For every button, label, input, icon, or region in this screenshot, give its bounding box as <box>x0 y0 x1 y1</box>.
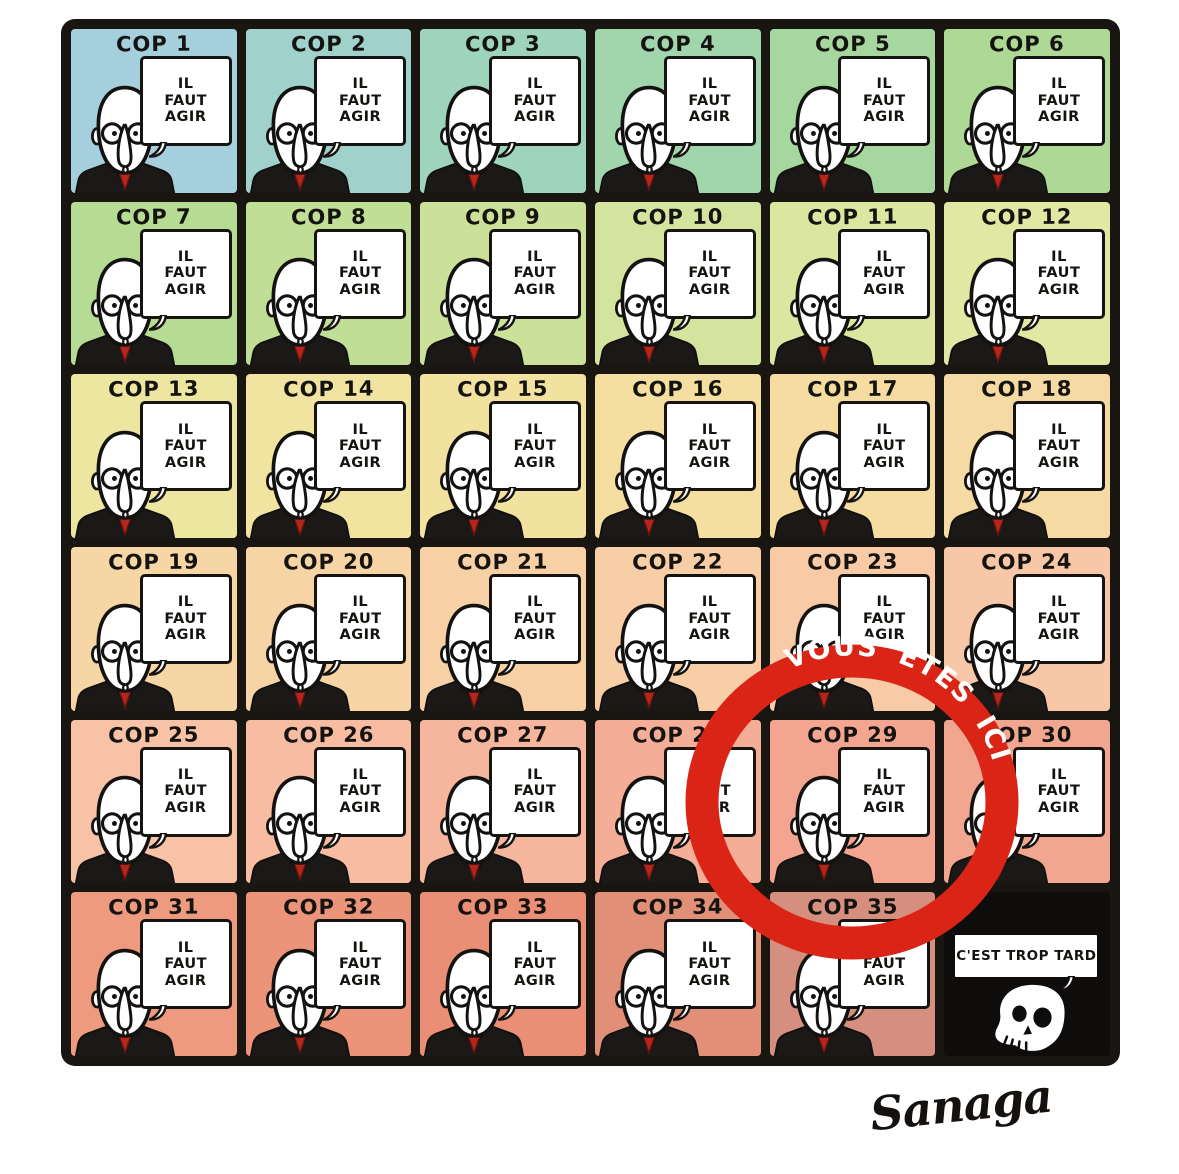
cop-panel-34: COP 34 IL FAUT AGIR <box>595 892 761 1056</box>
cop-panel-32: COP 32 IL FAUT AGIR <box>246 892 412 1056</box>
speech-line: IL <box>178 594 194 611</box>
cop-label: COP 28 <box>595 722 761 748</box>
cop-panel-24: COP 24 IL FAUT AGIR <box>944 547 1110 711</box>
comic-page: COP 1 IL FAUT AGIR COP 2 <box>0 0 1179 1174</box>
speech-line: AGIR <box>514 627 556 644</box>
cop-label: COP 13 <box>71 376 237 402</box>
speech-bubble: IL FAUT AGIR <box>314 229 406 319</box>
speech-line: AGIR <box>689 109 731 126</box>
speech-bubble: IL FAUT AGIR <box>664 229 756 319</box>
speech-line: AGIR <box>165 800 207 817</box>
speech-line: AGIR <box>339 282 381 299</box>
cop-label: COP 21 <box>420 549 586 575</box>
bubble-tail <box>673 315 691 331</box>
bubble-tail <box>847 833 865 849</box>
cop-panel-1: COP 1 IL FAUT AGIR <box>71 29 237 193</box>
bubble-tail <box>847 142 865 158</box>
bubble-tail <box>1022 487 1040 503</box>
speech-line: FAUT <box>339 956 382 973</box>
speech-bubble: IL FAUT AGIR <box>838 747 930 837</box>
too-late-text: C'EST TROP TARD <box>956 948 1096 964</box>
speech-line: IL <box>178 422 194 439</box>
cop-panel-15: COP 15 IL FAUT AGIR <box>420 374 586 538</box>
speech-bubble: IL FAUT AGIR <box>1013 747 1105 837</box>
speech-bubble: IL FAUT AGIR <box>140 574 232 664</box>
speech-line: FAUT <box>863 93 906 110</box>
speech-line: AGIR <box>514 973 556 990</box>
cop-label: COP 18 <box>944 376 1110 402</box>
speech-line: AGIR <box>339 455 381 472</box>
cop-label: COP 4 <box>595 31 761 57</box>
speech-bubble: IL FAUT AGIR <box>1013 229 1105 319</box>
speech-bubble: IL FAUT AGIR <box>140 229 232 319</box>
speech-bubble: IL FAUT AGIR <box>314 574 406 664</box>
speech-line: IL <box>353 767 369 784</box>
bubble-tail <box>323 1005 341 1021</box>
speech-line: IL <box>527 940 543 957</box>
speech-bubble: IL FAUT AGIR <box>664 919 756 1009</box>
cop-label: COP 17 <box>770 376 936 402</box>
bubble-tail <box>847 1005 865 1021</box>
speech-line: AGIR <box>339 800 381 817</box>
bubble-tail <box>673 142 691 158</box>
speech-line: FAUT <box>688 438 731 455</box>
cop-label: COP 10 <box>595 204 761 230</box>
speech-line: AGIR <box>863 800 905 817</box>
cop-label: COP 8 <box>246 204 412 230</box>
cop-panel-8: COP 8 IL FAUT AGIR <box>246 202 412 366</box>
cop-panel-too-late: C'EST TROP TARD <box>944 892 1110 1056</box>
artist-signature: Sanaga <box>829 1065 1093 1146</box>
speech-bubble: IL FAUT AGIR <box>664 574 756 664</box>
speech-line: FAUT <box>514 956 557 973</box>
cop-label: COP 24 <box>944 549 1110 575</box>
speech-line: FAUT <box>688 956 731 973</box>
bubble-tail <box>323 315 341 331</box>
cop-panel-6: COP 6 IL FAUT AGIR <box>944 29 1110 193</box>
cop-panels-grid: COP 1 IL FAUT AGIR COP 2 <box>61 19 1120 1066</box>
speech-line: IL <box>178 76 194 93</box>
cop-panel-30: COP 30 IL FAUT AGIR <box>944 720 1110 884</box>
speech-line: AGIR <box>165 282 207 299</box>
cop-label: COP 23 <box>770 549 936 575</box>
cop-panel-26: COP 26 IL FAUT AGIR <box>246 720 412 884</box>
speech-bubble: IL FAUT AGIR <box>489 747 581 837</box>
cop-panel-20: COP 20 IL FAUT AGIR <box>246 547 412 711</box>
speech-line: IL <box>1051 422 1067 439</box>
speech-bubble: IL FAUT AGIR <box>314 747 406 837</box>
speech-line: FAUT <box>339 783 382 800</box>
bubble-tail <box>323 660 341 676</box>
speech-line: FAUT <box>688 265 731 282</box>
bubble-tail <box>149 142 167 158</box>
bubble-tail <box>1022 833 1040 849</box>
bubble-tail <box>498 142 516 158</box>
speech-line: AGIR <box>165 109 207 126</box>
cop-label: COP 26 <box>246 722 412 748</box>
speech-line: AGIR <box>165 455 207 472</box>
speech-bubble: IL FAUT AGIR <box>489 574 581 664</box>
speech-line: AGIR <box>165 973 207 990</box>
bubble-tail <box>1022 315 1040 331</box>
bubble-tail <box>847 315 865 331</box>
speech-bubble: IL FAUT AGIR <box>664 747 756 837</box>
speech-bubble: IL FAUT AGIR <box>664 401 756 491</box>
speech-line: AGIR <box>863 973 905 990</box>
cop-panel-9: COP 9 IL FAUT AGIR <box>420 202 586 366</box>
speech-line: AGIR <box>339 973 381 990</box>
cop-label: COP 12 <box>944 204 1110 230</box>
bubble-tail <box>1022 660 1040 676</box>
cop-panel-7: COP 7 IL FAUT AGIR <box>71 202 237 366</box>
speech-line: AGIR <box>339 109 381 126</box>
speech-line: FAUT <box>164 956 207 973</box>
cop-panel-23: COP 23 IL FAUT AGIR <box>770 547 936 711</box>
speech-line: IL <box>353 249 369 266</box>
speech-line: IL <box>877 76 893 93</box>
speech-line: FAUT <box>1038 93 1081 110</box>
speech-line: AGIR <box>689 973 731 990</box>
bubble-tail <box>673 1005 691 1021</box>
cop-label: COP 19 <box>71 549 237 575</box>
speech-line: AGIR <box>514 109 556 126</box>
cop-panel-2: COP 2 IL FAUT AGIR <box>246 29 412 193</box>
cop-label: COP 27 <box>420 722 586 748</box>
cop-label: COP 1 <box>71 31 237 57</box>
speech-line: AGIR <box>1038 109 1080 126</box>
cop-label: COP 25 <box>71 722 237 748</box>
speech-line: IL <box>702 767 718 784</box>
speech-line: FAUT <box>514 438 557 455</box>
bubble-tail <box>498 1005 516 1021</box>
speech-line: AGIR <box>689 627 731 644</box>
bubble-tail <box>149 487 167 503</box>
cop-panel-13: COP 13 IL FAUT AGIR <box>71 374 237 538</box>
bubble-tail <box>847 660 865 676</box>
speech-line: AGIR <box>863 109 905 126</box>
speech-bubble: IL FAUT AGIR <box>838 401 930 491</box>
speech-line: FAUT <box>1038 438 1081 455</box>
speech-line: FAUT <box>164 438 207 455</box>
speech-line: FAUT <box>688 611 731 628</box>
speech-line: IL <box>702 594 718 611</box>
cop-panel-10: COP 10 IL FAUT AGIR <box>595 202 761 366</box>
bubble-tail <box>149 660 167 676</box>
cop-panel-3: COP 3 IL FAUT AGIR <box>420 29 586 193</box>
bubble-tail <box>149 315 167 331</box>
speech-line: FAUT <box>339 265 382 282</box>
speech-line: IL <box>877 940 893 957</box>
speech-bubble: IL FAUT AGIR <box>838 919 930 1009</box>
speech-line: IL <box>527 422 543 439</box>
speech-line: IL <box>178 940 194 957</box>
speech-line: IL <box>702 940 718 957</box>
speech-line: FAUT <box>863 783 906 800</box>
speech-bubble: IL FAUT AGIR <box>838 56 930 146</box>
speech-bubble: IL FAUT AGIR <box>489 919 581 1009</box>
speech-line: FAUT <box>863 956 906 973</box>
speech-line: FAUT <box>164 93 207 110</box>
speech-line: IL <box>877 422 893 439</box>
bubble-tail <box>673 833 691 849</box>
speech-line: FAUT <box>1038 783 1081 800</box>
cop-label: COP 16 <box>595 376 761 402</box>
speech-bubble: IL FAUT AGIR <box>140 401 232 491</box>
speech-line: IL <box>877 767 893 784</box>
speech-line: IL <box>353 422 369 439</box>
speech-line: AGIR <box>689 282 731 299</box>
bubble-tail <box>149 1005 167 1021</box>
cop-label: COP 7 <box>71 204 237 230</box>
speech-bubble: IL FAUT AGIR <box>664 56 756 146</box>
cop-label: COP 9 <box>420 204 586 230</box>
cop-panel-28: COP 28 IL FAUT AGIR <box>595 720 761 884</box>
cop-label: COP 20 <box>246 549 412 575</box>
speech-line: AGIR <box>689 800 731 817</box>
speech-line: FAUT <box>863 265 906 282</box>
speech-line: AGIR <box>863 282 905 299</box>
cop-panel-14: COP 14 IL FAUT AGIR <box>246 374 412 538</box>
speech-line: IL <box>877 249 893 266</box>
speech-line: AGIR <box>863 627 905 644</box>
bubble-tail <box>498 660 516 676</box>
speech-line: FAUT <box>164 611 207 628</box>
bubble-tail <box>1057 976 1075 992</box>
speech-line: FAUT <box>514 93 557 110</box>
speech-line: IL <box>1051 594 1067 611</box>
bubble-tail <box>498 833 516 849</box>
cop-label: COP 29 <box>770 722 936 748</box>
speech-bubble: IL FAUT AGIR <box>1013 401 1105 491</box>
speech-line: IL <box>178 249 194 266</box>
speech-line: FAUT <box>339 611 382 628</box>
speech-line: IL <box>527 594 543 611</box>
speech-line: IL <box>702 76 718 93</box>
cop-panel-35: COP 35 IL FAUT AGIR <box>770 892 936 1056</box>
cop-panel-25: COP 25 IL FAUT AGIR <box>71 720 237 884</box>
speech-line: FAUT <box>863 438 906 455</box>
speech-line: IL <box>877 594 893 611</box>
speech-bubble: IL FAUT AGIR <box>838 229 930 319</box>
bubble-tail <box>847 487 865 503</box>
speech-line: IL <box>702 422 718 439</box>
speech-line: AGIR <box>165 627 207 644</box>
speech-line: IL <box>353 76 369 93</box>
speech-line: FAUT <box>164 265 207 282</box>
speech-line: FAUT <box>514 783 557 800</box>
skull-icon <box>984 982 1076 1054</box>
speech-bubble: IL FAUT AGIR <box>489 56 581 146</box>
cop-panel-17: COP 17 IL FAUT AGIR <box>770 374 936 538</box>
cop-panel-33: COP 33 IL FAUT AGIR <box>420 892 586 1056</box>
cop-panel-12: COP 12 IL FAUT AGIR <box>944 202 1110 366</box>
speech-line: AGIR <box>863 455 905 472</box>
speech-line: FAUT <box>339 438 382 455</box>
speech-bubble: IL FAUT AGIR <box>314 56 406 146</box>
speech-line: AGIR <box>689 455 731 472</box>
speech-line: FAUT <box>1038 611 1081 628</box>
speech-line: AGIR <box>1038 282 1080 299</box>
bubble-tail <box>673 487 691 503</box>
cop-label: COP 30 <box>944 722 1110 748</box>
bubble-tail <box>1022 142 1040 158</box>
speech-bubble: IL FAUT AGIR <box>314 919 406 1009</box>
speech-line: AGIR <box>514 282 556 299</box>
cop-panel-29: COP 29 IL FAUT AGIR <box>770 720 936 884</box>
cop-panel-11: COP 11 IL FAUT AGIR <box>770 202 936 366</box>
speech-bubble: IL FAUT AGIR <box>1013 56 1105 146</box>
speech-line: AGIR <box>1038 455 1080 472</box>
speech-line: IL <box>1051 767 1067 784</box>
cop-panel-16: COP 16 IL FAUT AGIR <box>595 374 761 538</box>
cop-label: COP 3 <box>420 31 586 57</box>
speech-line: FAUT <box>688 783 731 800</box>
speech-line: AGIR <box>339 627 381 644</box>
cop-label: COP 5 <box>770 31 936 57</box>
bubble-tail <box>149 833 167 849</box>
speech-line: FAUT <box>1038 265 1081 282</box>
cop-label: COP 15 <box>420 376 586 402</box>
speech-line: AGIR <box>514 800 556 817</box>
speech-line: IL <box>1051 249 1067 266</box>
cop-panel-18: COP 18 IL FAUT AGIR <box>944 374 1110 538</box>
speech-bubble: IL FAUT AGIR <box>140 747 232 837</box>
speech-bubble: IL FAUT AGIR <box>1013 574 1105 664</box>
speech-line: IL <box>527 767 543 784</box>
cop-panel-31: COP 31 IL FAUT AGIR <box>71 892 237 1056</box>
speech-line: IL <box>527 76 543 93</box>
speech-line: FAUT <box>339 93 382 110</box>
bubble-tail <box>323 142 341 158</box>
speech-bubble: IL FAUT AGIR <box>140 919 232 1009</box>
too-late-speech-bubble: C'EST TROP TARD <box>952 932 1100 980</box>
speech-line: IL <box>1051 76 1067 93</box>
speech-line: AGIR <box>1038 800 1080 817</box>
speech-line: AGIR <box>1038 627 1080 644</box>
cop-panel-5: COP 5 IL FAUT AGIR <box>770 29 936 193</box>
cop-label: COP 32 <box>246 894 412 920</box>
bubble-tail <box>323 833 341 849</box>
cop-panel-27: COP 27 IL FAUT AGIR <box>420 720 586 884</box>
cop-label: COP 22 <box>595 549 761 575</box>
cop-label: COP 31 <box>71 894 237 920</box>
cop-panel-22: COP 22 IL FAUT AGIR <box>595 547 761 711</box>
cop-label: COP 2 <box>246 31 412 57</box>
speech-bubble: IL FAUT AGIR <box>140 56 232 146</box>
speech-line: FAUT <box>688 93 731 110</box>
bubble-tail <box>673 660 691 676</box>
bubble-tail <box>323 487 341 503</box>
cop-label: COP 34 <box>595 894 761 920</box>
speech-bubble: IL FAUT AGIR <box>838 574 930 664</box>
cop-label: COP 14 <box>246 376 412 402</box>
speech-line: FAUT <box>863 611 906 628</box>
speech-line: IL <box>702 249 718 266</box>
speech-line: FAUT <box>514 611 557 628</box>
cop-panel-21: COP 21 IL FAUT AGIR <box>420 547 586 711</box>
cop-label: COP 6 <box>944 31 1110 57</box>
bubble-tail <box>498 315 516 331</box>
speech-bubble: IL FAUT AGIR <box>489 401 581 491</box>
speech-line: IL <box>178 767 194 784</box>
speech-line: IL <box>527 249 543 266</box>
cop-label: COP 11 <box>770 204 936 230</box>
speech-line: FAUT <box>164 783 207 800</box>
speech-line: IL <box>353 940 369 957</box>
bubble-tail <box>498 487 516 503</box>
cop-panel-19: COP 19 IL FAUT AGIR <box>71 547 237 711</box>
speech-line: AGIR <box>514 455 556 472</box>
speech-bubble: IL FAUT AGIR <box>314 401 406 491</box>
speech-bubble: IL FAUT AGIR <box>489 229 581 319</box>
speech-line: FAUT <box>514 265 557 282</box>
cop-label: COP 33 <box>420 894 586 920</box>
speech-line: IL <box>353 594 369 611</box>
cop-label: COP 35 <box>770 894 936 920</box>
cop-panel-4: COP 4 IL FAUT AGIR <box>595 29 761 193</box>
